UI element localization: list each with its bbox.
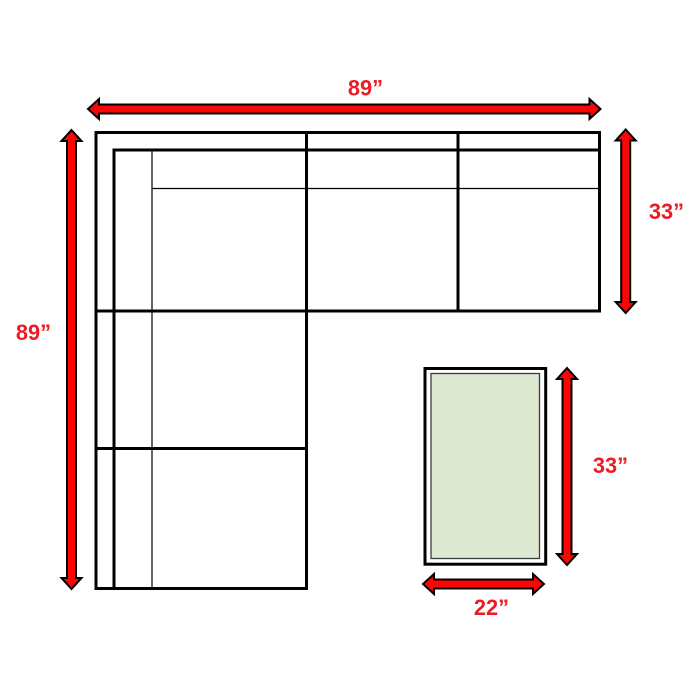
svg-text:33”: 33” bbox=[593, 453, 628, 478]
svg-text:89”: 89” bbox=[348, 76, 383, 101]
svg-text:33”: 33” bbox=[649, 199, 684, 224]
svg-text:89”: 89” bbox=[16, 320, 51, 345]
svg-text:22”: 22” bbox=[474, 595, 509, 620]
